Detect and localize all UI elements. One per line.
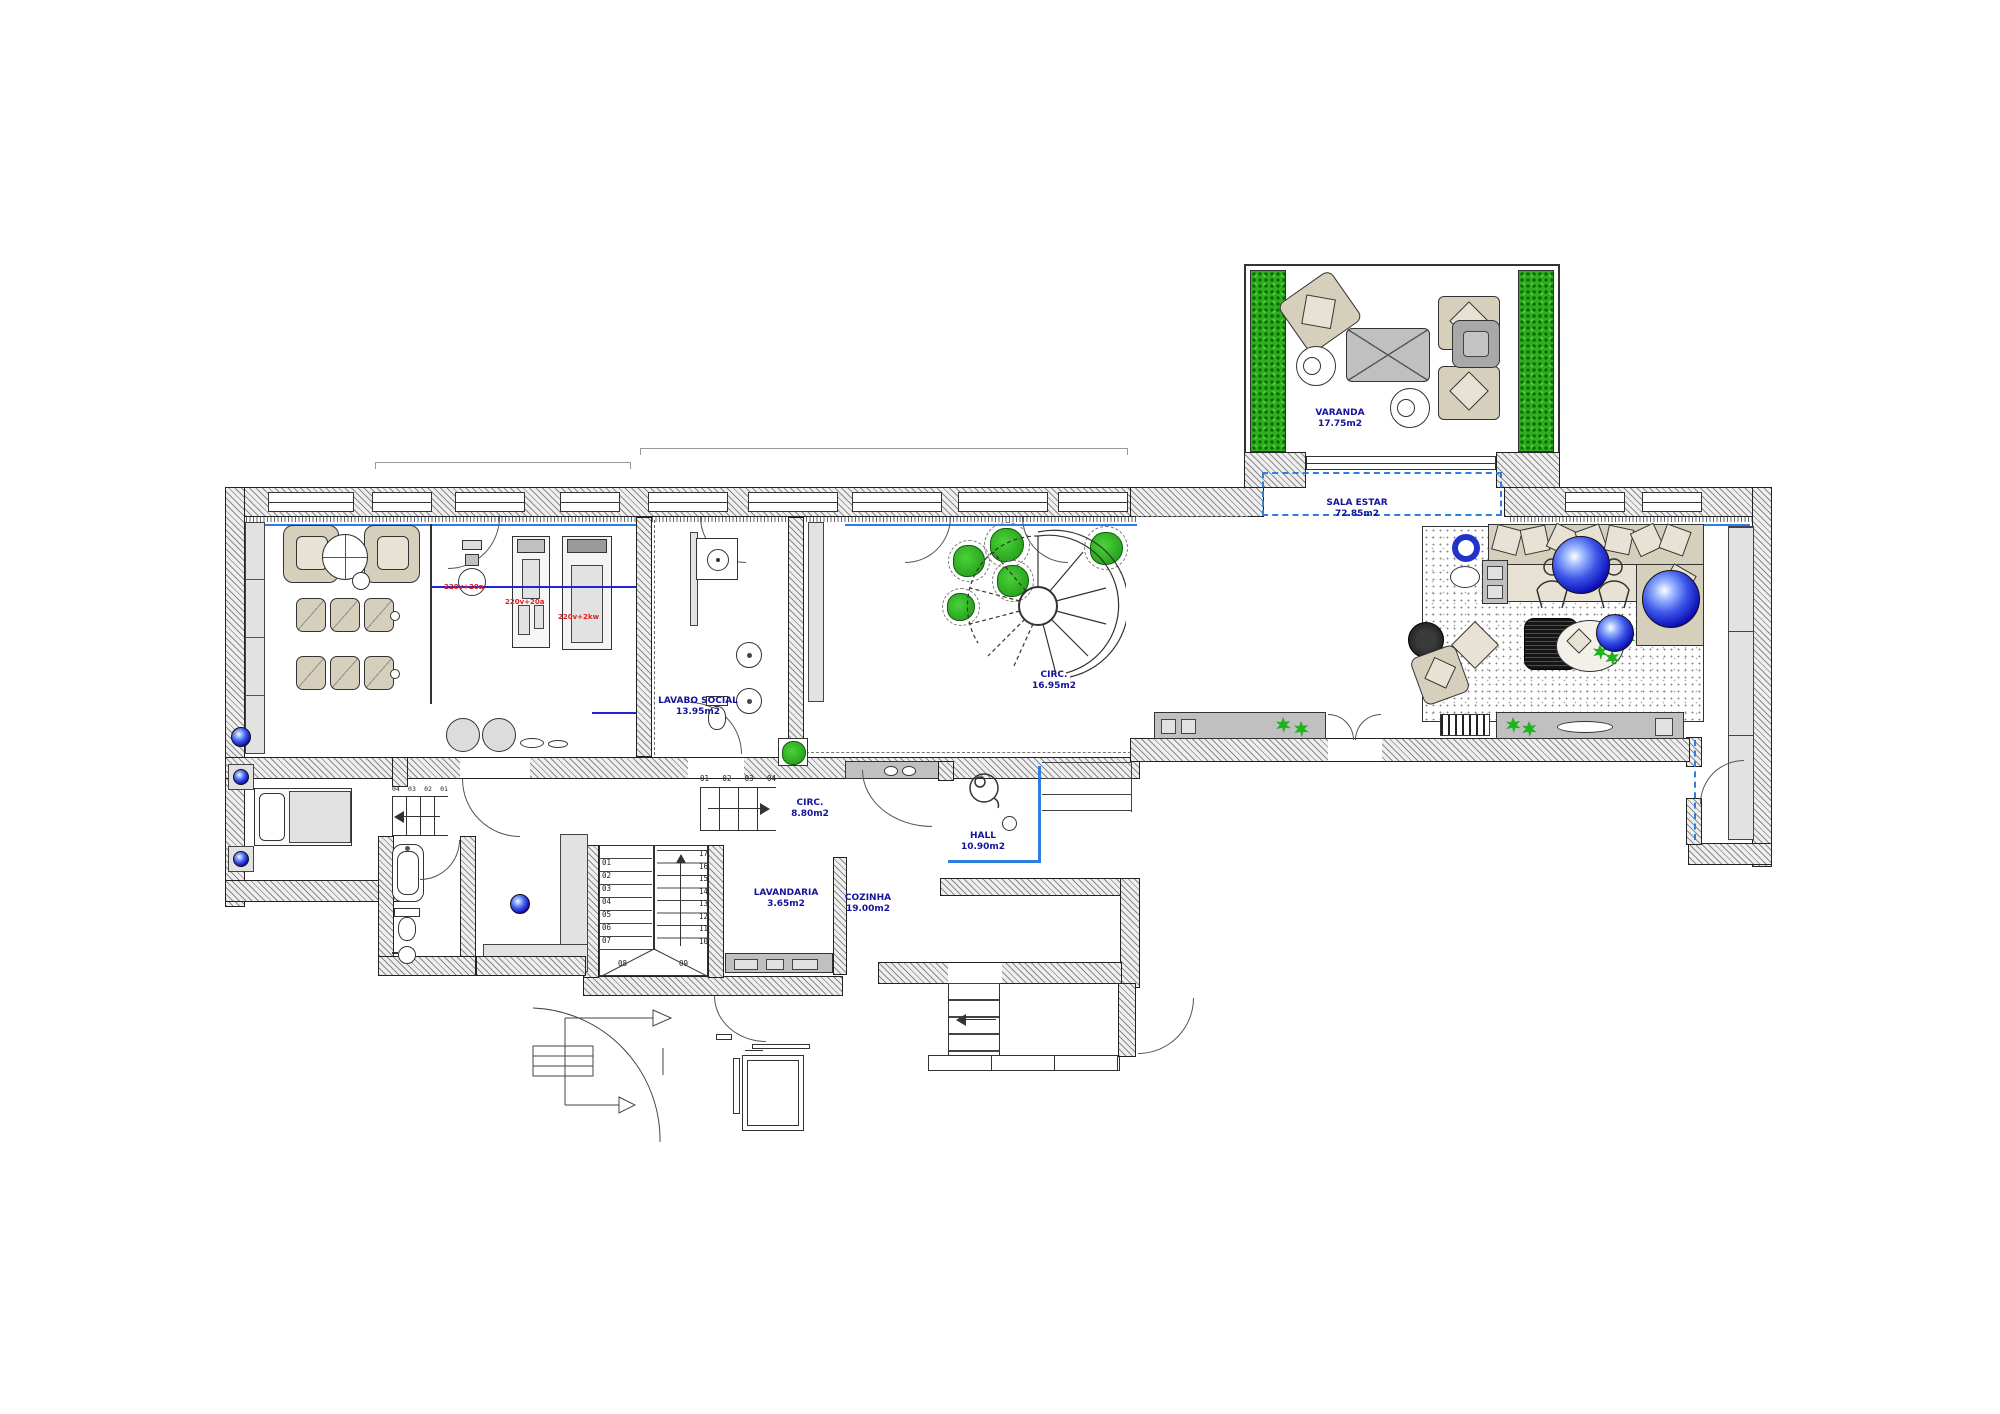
window bbox=[1058, 492, 1128, 512]
drawer bbox=[1487, 566, 1503, 580]
drain-dot bbox=[716, 558, 720, 562]
faucet bbox=[405, 846, 410, 851]
door-swing bbox=[862, 770, 932, 827]
up-arrow-line bbox=[680, 862, 681, 946]
stair-wall bbox=[708, 845, 724, 978]
step-number: 01 bbox=[440, 786, 448, 795]
window bbox=[748, 492, 838, 512]
room-label-sala-estar: SALA ESTAR 72.85m2 bbox=[1302, 498, 1412, 520]
dimension-line bbox=[640, 448, 1128, 455]
arrow-line bbox=[404, 816, 440, 817]
sofa-side-drawers bbox=[1482, 560, 1508, 604]
step-number: 11 bbox=[692, 925, 708, 938]
interior-wall bbox=[1130, 738, 1690, 762]
machine-rail bbox=[534, 605, 544, 629]
bike-base bbox=[458, 568, 486, 596]
floor-plan: VARANDA 17.75m2 bbox=[0, 0, 2000, 1414]
lamp-sphere bbox=[231, 727, 251, 747]
room-name: LAVANDARIA bbox=[754, 888, 819, 899]
exercise-bike bbox=[450, 540, 494, 604]
person-figure bbox=[1296, 346, 1336, 386]
sideboard bbox=[1496, 712, 1684, 739]
sink-drain bbox=[747, 653, 752, 658]
tap bbox=[392, 952, 398, 954]
sofa-cushion bbox=[1520, 525, 1551, 556]
tray bbox=[1655, 718, 1673, 736]
room-label-circ-servico: CIRC. 8.80m2 bbox=[782, 798, 838, 820]
step-numbers: 01020304 bbox=[700, 775, 776, 785]
up-arrow-head bbox=[676, 854, 686, 863]
step-number: 02 bbox=[722, 775, 731, 785]
door-swing bbox=[1700, 760, 1744, 804]
hedge-left bbox=[1250, 270, 1286, 452]
stair-numbers-right: 1716151413121110 bbox=[692, 850, 708, 950]
blanket bbox=[289, 791, 351, 843]
room-name: VARANDA bbox=[1315, 408, 1364, 419]
door-opening bbox=[460, 758, 530, 778]
window bbox=[372, 492, 432, 512]
window bbox=[1565, 492, 1625, 512]
toilet-bowl bbox=[398, 917, 416, 941]
wall bbox=[378, 956, 476, 976]
tray bbox=[1161, 719, 1176, 734]
fitness-ball bbox=[446, 718, 480, 752]
bookshelf bbox=[1440, 714, 1490, 736]
tray bbox=[1181, 719, 1196, 734]
bowl bbox=[548, 740, 568, 748]
dimension-line bbox=[375, 462, 631, 469]
shelf-bars bbox=[752, 1044, 810, 1049]
room-area: 3.65m2 bbox=[767, 899, 805, 910]
window bbox=[648, 492, 728, 512]
window bbox=[1642, 492, 1702, 512]
cabinet-door-swing bbox=[1328, 714, 1354, 740]
room-area: 8.80m2 bbox=[791, 809, 829, 820]
tall-cabinet bbox=[808, 522, 824, 702]
arrow-line bbox=[708, 808, 760, 809]
pillow bbox=[259, 793, 285, 841]
ceiling-fan-symbol bbox=[1452, 534, 1480, 562]
step-number: 13 bbox=[692, 900, 708, 913]
bowl bbox=[1002, 816, 1017, 831]
sideboard bbox=[1154, 712, 1326, 739]
step-number: 15 bbox=[692, 875, 708, 888]
door-swing bbox=[905, 517, 951, 563]
window bbox=[958, 492, 1048, 512]
lounge-chair bbox=[1438, 366, 1500, 420]
exterior-wall-left bbox=[225, 487, 245, 907]
drawer bbox=[1487, 585, 1503, 599]
room-label-circ-escada: CIRC. 16.95m2 bbox=[1018, 670, 1090, 692]
plant-foliage bbox=[782, 741, 806, 765]
direction-arrow-left bbox=[394, 811, 404, 823]
lamp-sphere bbox=[1596, 614, 1634, 652]
cushion bbox=[1449, 371, 1489, 411]
power-note: 220v+20a bbox=[444, 583, 484, 591]
side-table bbox=[1452, 320, 1500, 368]
step-number: 02 bbox=[424, 786, 432, 795]
fitness-ball bbox=[482, 718, 516, 752]
headrest-ring bbox=[390, 611, 400, 621]
exterior-wall-right bbox=[1752, 487, 1772, 867]
entry-highlight bbox=[948, 860, 1041, 863]
window bbox=[268, 492, 354, 512]
step-number: 09 bbox=[679, 960, 688, 968]
cabinet-door-swing bbox=[1355, 714, 1381, 740]
laundry-counter bbox=[725, 953, 833, 973]
room-name: LAVABO SOCIAL bbox=[658, 696, 738, 707]
cabinet bbox=[742, 1055, 804, 1131]
stool bbox=[352, 572, 370, 590]
room-name: CIRC. bbox=[1041, 670, 1068, 681]
stair-numbers-left: 01020304050607 bbox=[602, 859, 618, 950]
interior-wall bbox=[788, 517, 804, 757]
weight-machine bbox=[512, 536, 550, 648]
armchair bbox=[364, 525, 420, 583]
room-area: 72.85m2 bbox=[1335, 509, 1379, 520]
treadmill bbox=[562, 536, 612, 650]
spiral-staircase bbox=[958, 528, 1126, 690]
door-swing bbox=[1138, 998, 1194, 1054]
massage-pad bbox=[296, 598, 326, 632]
window bbox=[560, 492, 620, 512]
stair-opening bbox=[948, 963, 1002, 983]
lamp-sphere-large bbox=[1642, 570, 1700, 628]
window-sill-highlight bbox=[845, 524, 1137, 526]
window bbox=[1306, 456, 1496, 470]
exterior-wall-top-mid bbox=[1130, 487, 1264, 517]
bike-seat bbox=[465, 554, 479, 566]
toilet-tank bbox=[394, 908, 420, 917]
step-number: 04 bbox=[767, 775, 776, 785]
machine-stack bbox=[522, 559, 540, 599]
room-area: 16.95m2 bbox=[1032, 681, 1076, 692]
exterior-wall-top-right bbox=[1504, 487, 1772, 517]
room-name: HALL bbox=[970, 831, 996, 842]
person-figure bbox=[1390, 388, 1430, 428]
room-label-cozinha: COZINHA 19.00m2 bbox=[828, 893, 908, 915]
room-area: 10.90m2 bbox=[961, 842, 1005, 853]
shelf-line bbox=[745, 1050, 763, 1051]
entry-highlight bbox=[1038, 766, 1041, 862]
coffee-table bbox=[1346, 328, 1430, 382]
appliance bbox=[734, 959, 758, 970]
wall bbox=[940, 878, 1140, 896]
partition-line bbox=[430, 524, 432, 704]
room-area: 17.75m2 bbox=[1318, 419, 1362, 430]
cushion bbox=[377, 536, 409, 570]
machine-rail bbox=[518, 605, 530, 635]
room-label-hall: HALL 10.90m2 bbox=[938, 831, 1028, 853]
door-highlight bbox=[1694, 740, 1698, 840]
cushion bbox=[1301, 294, 1336, 329]
room-name: SALA ESTAR bbox=[1326, 498, 1387, 509]
wall-pier bbox=[1118, 983, 1136, 1057]
interior-wall bbox=[833, 857, 847, 975]
plant-sprig bbox=[1505, 717, 1521, 733]
sink-round bbox=[736, 642, 762, 668]
step-number: 17 bbox=[692, 850, 708, 863]
door-leaf bbox=[716, 1034, 732, 1040]
main-staircase: 01020304050607 1716151413121110 0809 bbox=[599, 845, 708, 976]
bike-console bbox=[462, 540, 482, 550]
insulation-line bbox=[1510, 517, 1765, 522]
bedroom-steps: 04030201 bbox=[392, 786, 448, 836]
headrest-ring bbox=[390, 669, 400, 679]
massage-pad bbox=[330, 598, 360, 632]
wall-pier bbox=[1496, 452, 1560, 488]
room-name: CIRC. bbox=[797, 798, 824, 809]
cushion bbox=[1424, 657, 1456, 689]
appliance bbox=[766, 959, 784, 970]
plant-sprig bbox=[1293, 721, 1309, 737]
oval-side-table bbox=[1450, 566, 1480, 588]
hedge-right bbox=[1518, 270, 1554, 452]
circ-small-stair: 01020304 bbox=[700, 775, 776, 833]
massage-pad bbox=[296, 656, 326, 690]
room-name: COZINHA bbox=[845, 893, 891, 904]
wall-pier bbox=[392, 757, 408, 787]
stair-numbers-bottom: 0809 bbox=[618, 960, 688, 968]
door-swing bbox=[420, 840, 460, 880]
step-number: 03 bbox=[745, 775, 754, 785]
room-label-varanda: VARANDA 17.75m2 bbox=[1295, 408, 1385, 430]
person-figure bbox=[966, 768, 1002, 814]
cabinet-inner bbox=[747, 1060, 799, 1126]
treadmill-console bbox=[567, 539, 607, 553]
window bbox=[852, 492, 942, 512]
arrow-line bbox=[966, 1019, 996, 1020]
lamp-sphere bbox=[510, 894, 530, 914]
alignment-dashed-line bbox=[654, 520, 655, 755]
closet-strip bbox=[245, 522, 265, 754]
side-table-top bbox=[1463, 331, 1489, 357]
sink-round bbox=[398, 946, 416, 964]
electrical-line bbox=[592, 712, 638, 714]
interior-wall bbox=[460, 836, 476, 976]
cabinet-opening bbox=[1328, 739, 1382, 761]
power-note: 220v+2kw bbox=[558, 613, 599, 621]
insulation-line bbox=[232, 517, 1137, 522]
stair-divider bbox=[653, 846, 655, 950]
wall bbox=[476, 956, 586, 976]
sink-drain bbox=[747, 699, 752, 704]
step-number: 08 bbox=[618, 960, 627, 968]
plant-sprig bbox=[1275, 717, 1291, 733]
platter bbox=[1557, 721, 1613, 733]
counter-vertical bbox=[560, 834, 588, 950]
step-number: 01 bbox=[700, 775, 709, 785]
deck-step bbox=[928, 1055, 1120, 1071]
interior-wall bbox=[636, 517, 652, 757]
bowl bbox=[520, 738, 544, 748]
massage-pad bbox=[330, 656, 360, 690]
wide-steps bbox=[1042, 762, 1132, 812]
step-number: 03 bbox=[408, 786, 416, 795]
lamp-sphere-large bbox=[1552, 536, 1610, 594]
appliance bbox=[792, 959, 818, 970]
bed bbox=[254, 788, 352, 846]
room-label-lavabo-social: LAVABO SOCIAL 13.95m2 bbox=[650, 696, 746, 718]
cabinet-side bbox=[733, 1058, 740, 1114]
direction-arrow-right bbox=[760, 803, 770, 815]
interior-wall-long bbox=[225, 757, 1140, 779]
machine-head bbox=[517, 539, 545, 553]
lamp-sphere bbox=[233, 851, 249, 867]
door-swing bbox=[462, 779, 520, 837]
sofa-cushion bbox=[1604, 525, 1635, 556]
room-area: 13.95m2 bbox=[676, 707, 720, 718]
step-numbers: 04030201 bbox=[392, 786, 448, 795]
boundary-dashed bbox=[806, 752, 1136, 753]
lamp-sphere bbox=[233, 769, 249, 785]
room-area: 19.00m2 bbox=[846, 904, 890, 915]
shower bbox=[696, 538, 738, 580]
power-note: 220v+20a bbox=[505, 598, 545, 606]
room-label-lavandaria: LAVANDARIA 3.65m2 bbox=[748, 888, 824, 910]
direction-arrow-left bbox=[956, 1014, 966, 1026]
wall-pier bbox=[938, 761, 954, 781]
window bbox=[455, 492, 525, 512]
wall bbox=[1688, 843, 1772, 865]
step-number: 04 bbox=[392, 786, 400, 795]
wall bbox=[1120, 878, 1140, 988]
boundary-dashed bbox=[1136, 516, 1248, 517]
plant-niche bbox=[778, 738, 808, 766]
plant-sprig bbox=[1521, 721, 1537, 737]
bathtub-inner bbox=[397, 851, 419, 895]
treadmill-belt bbox=[571, 565, 603, 643]
